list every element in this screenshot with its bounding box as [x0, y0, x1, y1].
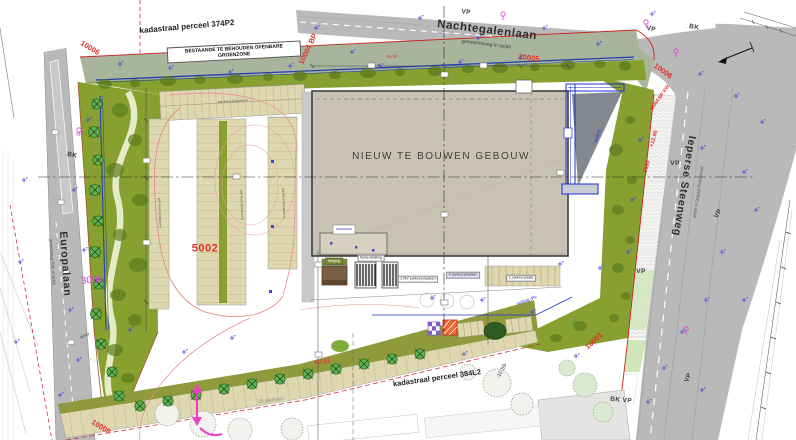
survey-number-label: 10006: [652, 62, 673, 80]
annotation-label: parkeerplaatsen: [281, 188, 286, 218]
annotation-label: -10.59-: [496, 362, 509, 380]
labels-layer: Nachtegalenlaan gemeenteweg in asfalt Eu…: [0, 0, 796, 440]
survey-number-label: 10004 BP KW: [650, 85, 671, 113]
road-name-europalaan: Europalaan: [57, 231, 72, 297]
road-mark-label: VP: [636, 269, 645, 276]
road-mark-label: VP: [461, 9, 471, 17]
annotation-label: helling 4%: [517, 295, 538, 307]
annotation-label: 150: [570, 317, 579, 326]
parcel-south-label: kadastraal perceel 384L2: [393, 368, 482, 388]
annotation-label: km/u: [80, 332, 90, 340]
annotation-label: +12.90: [650, 130, 660, 148]
building-label: NIEUW TE BOUWEN GEBOUW: [352, 152, 530, 162]
annotation-label: 25 plaatsen: [258, 397, 284, 405]
annotation-label: +11.51: [313, 359, 330, 366]
annotation-label: fietsenstalling: [358, 255, 385, 262]
road-name-ieperse-steenweg: Ieperse Steenweg: [671, 135, 697, 237]
road-name-nachtegalenlaan: Nachtegalenlaan: [436, 19, 537, 43]
road-type-europalaan: gewestweg (N8) in asfalt: [48, 238, 56, 285]
road-mark-label: VP: [684, 372, 694, 383]
annotation-label: parkeerplaatsen: [239, 190, 244, 220]
greenzone-note: BESTAANDE TE BEHOUDEN OPENBARE GROENZONE: [167, 41, 302, 64]
annotation-label: berging: [325, 258, 343, 265]
annotation-label: 4 parkeerplaatsen: [446, 272, 480, 279]
annotation-label: 2 MV parkeerplaatsen: [398, 276, 438, 283]
annotation-label: 26.92: [387, 55, 398, 60]
survey-number-label: 10001: [584, 331, 604, 351]
annotation-label: 2000: [644, 160, 653, 173]
site-plan: Nachtegalenlaan gemeenteweg in asfalt Eu…: [0, 0, 796, 440]
road-mark-label: BK VP: [610, 397, 632, 406]
annotation-label: 3000: [81, 275, 104, 287]
road-mark-label: VP: [670, 161, 679, 168]
road-type-ieperse-steenweg: gewestweg (N369) in asfalt: [692, 166, 704, 218]
survey-number-label: 10006: [79, 39, 101, 56]
road-type-nachtegalenlaan: gemeenteweg in asfalt: [461, 39, 511, 50]
annotation-label: 3.50: [75, 131, 85, 137]
annotation-label: 1 parkeerplaats: [506, 275, 536, 282]
annotation-label: parkeerplaatsen: [218, 99, 248, 104]
road-mark-label: VP: [646, 26, 656, 34]
survey-number-label: 10008: [90, 418, 112, 435]
parcel-north-label: kadastraal perceel 374P2: [139, 19, 235, 35]
road-mark-label: VP: [714, 208, 724, 219]
annotation-label: parkeerplaatsen: [157, 198, 162, 228]
road-mark-label: BK: [688, 24, 699, 32]
annotation-label: helling: [594, 129, 602, 143]
road-mark-label: BK: [66, 152, 77, 160]
annotation-label: 5002: [192, 244, 218, 255]
survey-number-label: 10005: [518, 53, 540, 63]
